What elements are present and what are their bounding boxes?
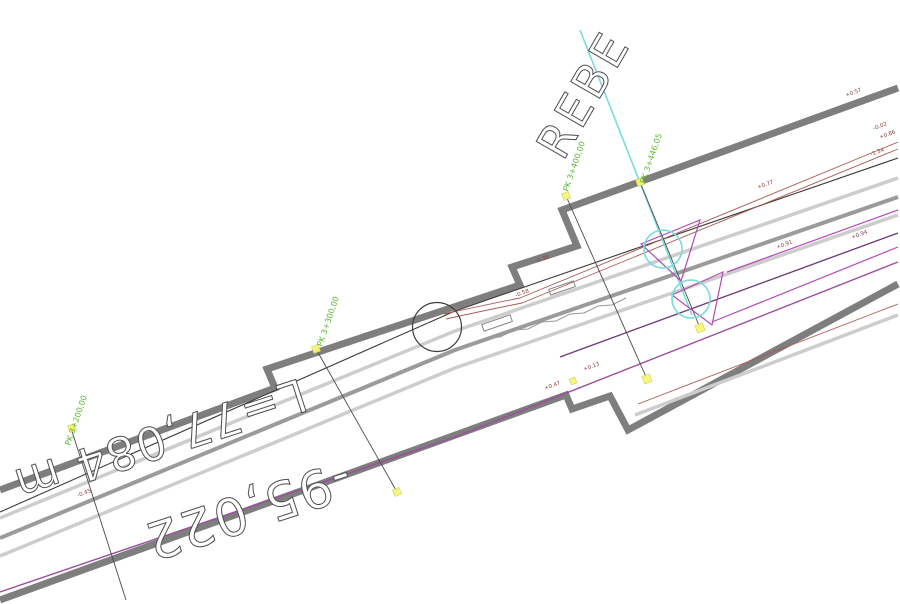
cyan-companion-line <box>640 182 700 328</box>
elevation-label: +0.86 <box>879 129 897 141</box>
edge-line-light-3 <box>635 315 898 415</box>
cad-viewport[interactable]: PK 3+200,00 PK 3+300,00 PK 3+400,00 PK 3… <box>0 0 900 604</box>
magenta-line-right-1 <box>712 247 898 322</box>
elevation-label: -1.34 <box>870 147 886 158</box>
magenta-line-right-2 <box>727 210 898 272</box>
station-marker <box>569 377 577 385</box>
elevation-label: +0.47 <box>544 380 562 392</box>
red-line-right-low <box>638 304 898 404</box>
elevation-label: +0.57 <box>845 87 863 99</box>
big-word-label: REBE <box>526 21 642 167</box>
walls <box>0 88 898 600</box>
alignment-lines <box>0 142 898 592</box>
cad-canvas: PK 3+200,00 PK 3+300,00 PK 3+400,00 PK 3… <box>0 0 900 604</box>
station-marker <box>393 488 402 497</box>
elevation-label: +0.13 <box>583 361 601 373</box>
cyan-arc-1 <box>644 230 682 268</box>
edge-line-light-2 <box>0 215 898 556</box>
station-label-3300: PK 3+300,00 <box>315 295 341 347</box>
station-marker <box>695 323 705 333</box>
station-marker <box>642 374 652 384</box>
elevation-label: -0.02 <box>873 121 888 132</box>
elevation-label: +0.77 <box>757 179 775 191</box>
annotation-texts: REBE L=77,084 m -95,022 <box>7 21 641 571</box>
